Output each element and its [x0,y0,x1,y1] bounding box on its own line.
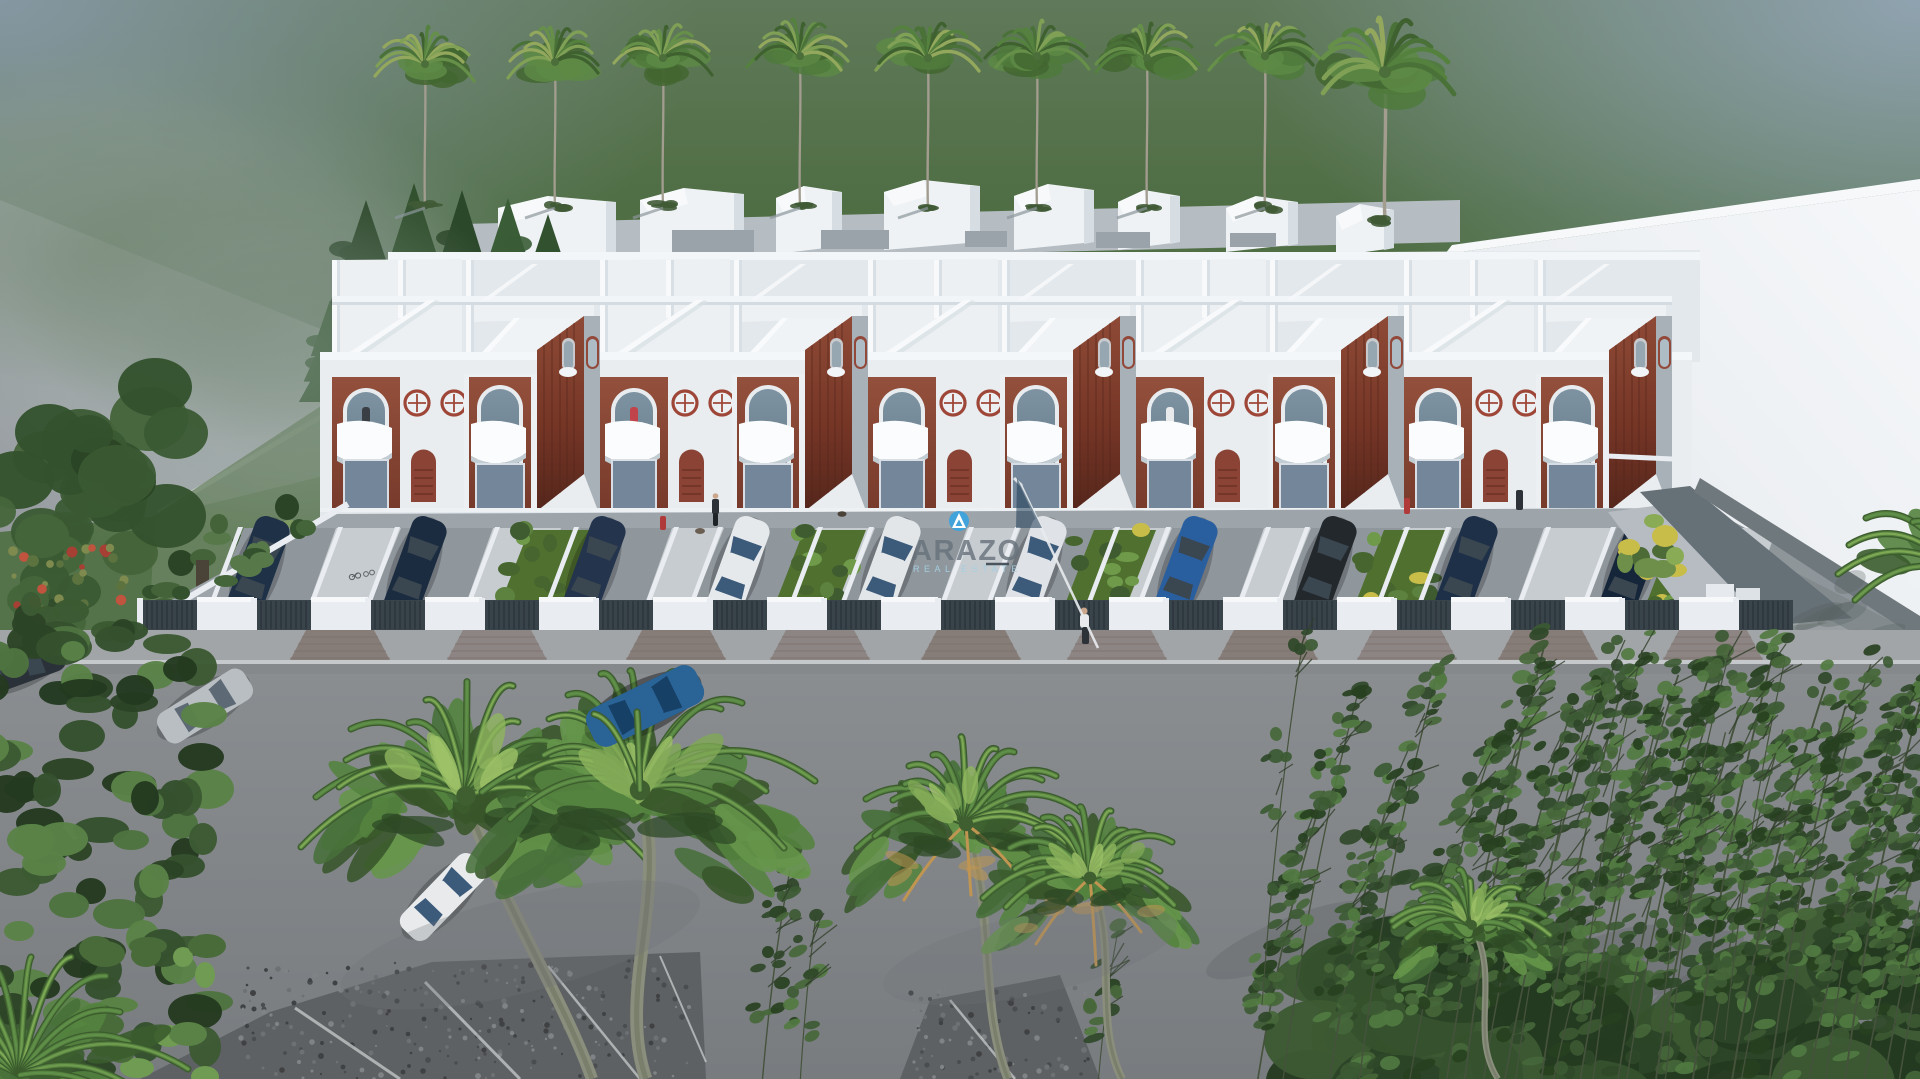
svg-text:ARAZO: ARAZO [911,535,1022,567]
svg-text:REAL ESTATE: REAL ESTATE [913,564,1022,574]
